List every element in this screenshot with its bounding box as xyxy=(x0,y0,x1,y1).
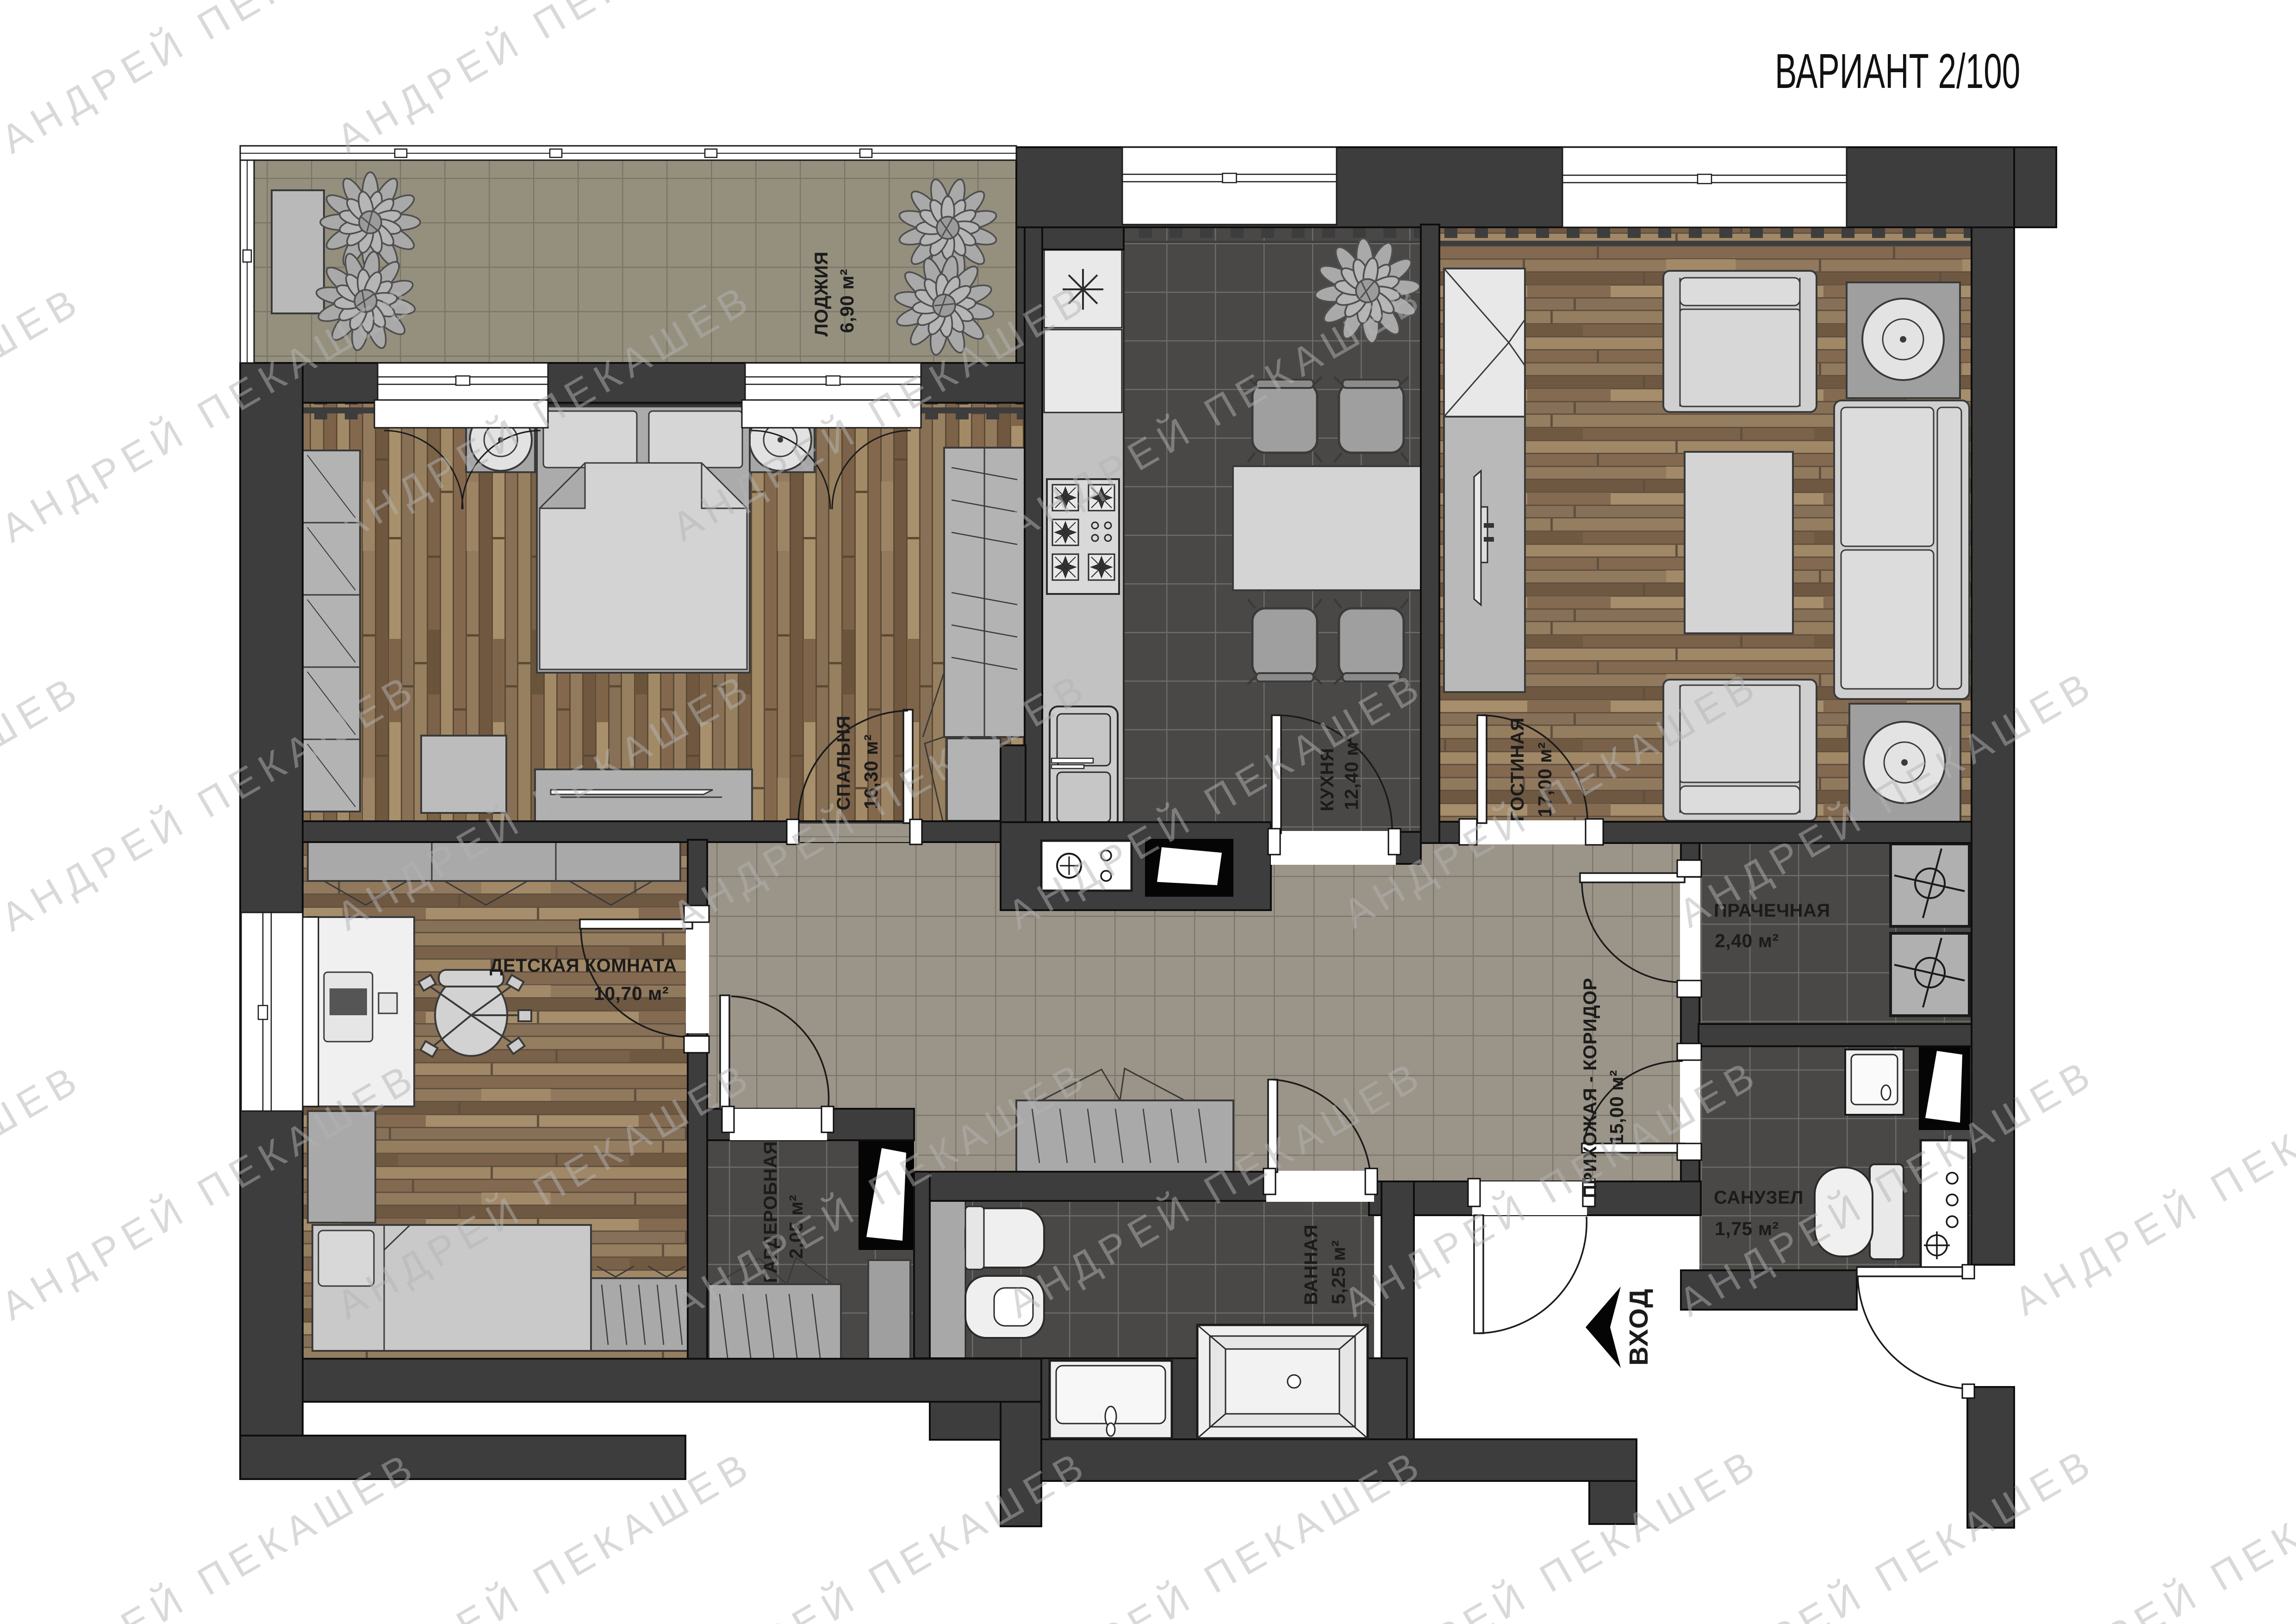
svg-text:САНУЗЕЛ: САНУЗЕЛ xyxy=(1714,1187,1804,1208)
svg-text:ВАРИАНТ 2/100: ВАРИАНТ 2/100 xyxy=(1775,44,2020,99)
svg-text:ДЕТСКАЯ КОМНАТА: ДЕТСКАЯ КОМНАТА xyxy=(490,956,677,976)
svg-text:ВАННАЯ: ВАННАЯ xyxy=(1301,1224,1321,1305)
svg-text:2,40 м²: 2,40 м² xyxy=(1715,930,1779,951)
svg-text:10,70 м²: 10,70 м² xyxy=(594,983,669,1004)
svg-text:6,90 м²: 6,90 м² xyxy=(836,269,858,333)
svg-text:ЛОДЖИЯ: ЛОДЖИЯ xyxy=(811,251,832,337)
svg-text:ВХОД: ВХОД xyxy=(1624,1288,1654,1366)
